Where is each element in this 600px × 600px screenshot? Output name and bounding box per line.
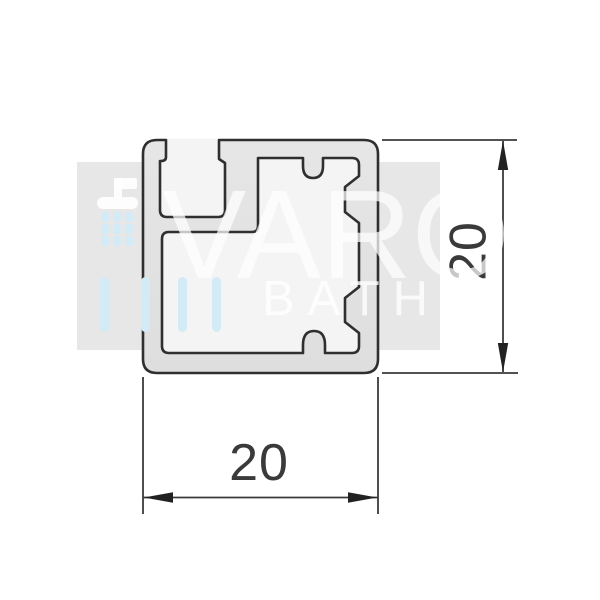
droplet bbox=[125, 212, 133, 222]
accent-bar bbox=[212, 277, 221, 332]
drawing-page: 20 20 VARO BATH bbox=[0, 0, 600, 600]
droplet bbox=[113, 236, 121, 246]
droplet bbox=[101, 236, 109, 246]
technical-drawing-canvas: 20 20 VARO BATH bbox=[0, 0, 600, 600]
droplet bbox=[125, 236, 133, 246]
droplet bbox=[113, 212, 121, 222]
arrowhead-right bbox=[348, 492, 377, 502]
shower-head bbox=[97, 197, 138, 209]
droplet-grid bbox=[101, 212, 133, 246]
accent-bar bbox=[100, 277, 109, 332]
brand-subtext: BATH bbox=[262, 272, 441, 326]
arrowhead-down bbox=[498, 343, 508, 372]
arrowhead-left bbox=[144, 492, 173, 502]
accent-bar bbox=[141, 277, 150, 332]
accent-bar bbox=[178, 277, 187, 332]
dim-width-label: 20 bbox=[229, 434, 289, 492]
droplet bbox=[125, 224, 133, 234]
shower-pipe bbox=[114, 178, 122, 199]
droplet bbox=[101, 212, 109, 222]
droplet bbox=[113, 224, 121, 234]
droplet bbox=[101, 224, 109, 234]
